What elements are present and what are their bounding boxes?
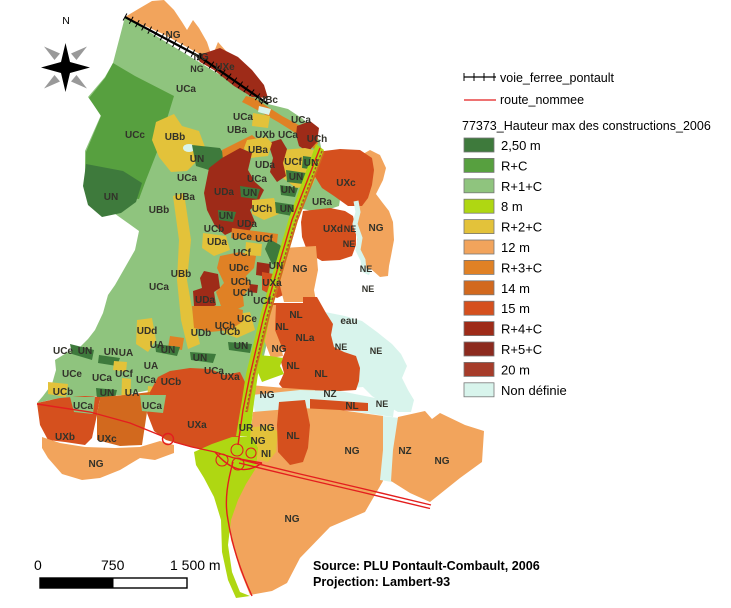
svg-text:12 m: 12 m bbox=[501, 240, 530, 255]
svg-text:UN: UN bbox=[161, 345, 175, 356]
svg-text:UN: UN bbox=[304, 158, 318, 169]
svg-text:UCa: UCa bbox=[291, 115, 311, 126]
svg-text:UXc: UXc bbox=[336, 178, 356, 189]
svg-text:UCe: UCe bbox=[62, 369, 82, 380]
svg-text:UN: UN bbox=[78, 346, 92, 357]
svg-text:UCb: UCb bbox=[220, 327, 241, 338]
svg-text:1 500 m: 1 500 m bbox=[170, 557, 221, 573]
svg-text:UN: UN bbox=[104, 192, 118, 203]
svg-text:UCa: UCa bbox=[278, 130, 298, 141]
svg-text:UDa: UDa bbox=[255, 160, 275, 171]
svg-text:UCb: UCb bbox=[204, 224, 225, 235]
svg-text:R+C: R+C bbox=[501, 158, 527, 173]
svg-text:UDa: UDa bbox=[237, 219, 257, 230]
svg-text:UN: UN bbox=[280, 204, 294, 215]
svg-text:NZ: NZ bbox=[398, 446, 411, 457]
svg-text:NG: NG bbox=[89, 459, 104, 470]
svg-text:NL: NL bbox=[314, 369, 327, 380]
svg-text:UCf: UCf bbox=[255, 234, 273, 245]
svg-text:NI: NI bbox=[261, 449, 271, 460]
svg-text:UCa: UCa bbox=[149, 282, 169, 293]
svg-text:UN: UN bbox=[100, 388, 114, 399]
svg-text:NG: NG bbox=[260, 423, 275, 434]
svg-text:UN: UN bbox=[289, 172, 303, 183]
svg-text:NL: NL bbox=[286, 361, 299, 372]
svg-text:route_nommee: route_nommee bbox=[500, 93, 584, 107]
svg-text:UDc: UDc bbox=[229, 263, 249, 274]
svg-text:UCa: UCa bbox=[142, 401, 162, 412]
svg-text:URa: URa bbox=[312, 197, 332, 208]
svg-text:UN: UN bbox=[269, 261, 283, 272]
svg-text:UN: UN bbox=[243, 188, 257, 199]
svg-text:8 m: 8 m bbox=[501, 199, 523, 214]
svg-text:UCf: UCf bbox=[253, 296, 271, 307]
svg-text:voie_ferree_pontault: voie_ferree_pontault bbox=[500, 71, 614, 85]
svg-text:UCb: UCb bbox=[161, 377, 182, 388]
svg-text:Projection: Lambert-93: Projection: Lambert-93 bbox=[313, 575, 450, 589]
svg-text:NE: NE bbox=[343, 239, 356, 249]
svg-text:UCh: UCh bbox=[231, 277, 252, 288]
svg-text:UBb: UBb bbox=[149, 205, 170, 216]
svg-text:NG: NG bbox=[251, 436, 266, 447]
svg-text:NE: NE bbox=[360, 264, 373, 274]
svg-text:UCa: UCa bbox=[73, 401, 93, 412]
svg-text:NG: NG bbox=[435, 456, 450, 467]
svg-text:UBa: UBa bbox=[248, 145, 268, 156]
svg-text:UCf: UCf bbox=[115, 369, 133, 380]
svg-text:R+4+C: R+4+C bbox=[501, 322, 542, 337]
svg-text:UCa: UCa bbox=[136, 375, 156, 386]
svg-text:R+3+C: R+3+C bbox=[501, 260, 542, 275]
svg-text:UXa: UXa bbox=[220, 372, 240, 383]
svg-text:UCa: UCa bbox=[176, 84, 196, 95]
svg-text:UDb: UDb bbox=[191, 328, 212, 339]
svg-text:UXc: UXc bbox=[97, 434, 117, 445]
svg-text:UCa: UCa bbox=[92, 373, 112, 384]
svg-text:NG: NG bbox=[293, 264, 308, 275]
svg-text:NE: NE bbox=[370, 346, 383, 356]
svg-text:eau: eau bbox=[340, 316, 357, 327]
svg-text:N: N bbox=[62, 15, 70, 27]
svg-text:UCa: UCa bbox=[233, 112, 253, 123]
svg-text:UCe: UCe bbox=[53, 346, 73, 357]
svg-text:UCc: UCc bbox=[125, 130, 145, 141]
svg-text:R+2+C: R+2+C bbox=[501, 220, 542, 235]
svg-text:750: 750 bbox=[101, 557, 125, 573]
svg-text:NG: NG bbox=[166, 30, 181, 41]
svg-text:UCa: UCa bbox=[247, 174, 267, 185]
svg-text:NL: NL bbox=[345, 401, 358, 412]
svg-text:77373_Hauteur max des construc: 77373_Hauteur max des constructions_2006 bbox=[462, 119, 711, 133]
svg-text:UCa: UCa bbox=[177, 173, 197, 184]
svg-text:UCh: UCh bbox=[252, 204, 273, 215]
svg-text:UN: UN bbox=[234, 341, 248, 352]
svg-text:NE: NE bbox=[362, 284, 375, 294]
svg-text:20 m: 20 m bbox=[501, 362, 530, 377]
svg-text:UA: UA bbox=[125, 388, 139, 399]
svg-text:NG: NG bbox=[369, 223, 384, 234]
svg-text:UA: UA bbox=[119, 348, 133, 359]
svg-text:UBb: UBb bbox=[165, 132, 186, 143]
svg-text:NL: NL bbox=[286, 431, 299, 442]
svg-text:UCf: UCf bbox=[284, 157, 302, 168]
svg-text:UR: UR bbox=[239, 423, 254, 434]
svg-text:UXd: UXd bbox=[323, 224, 343, 235]
svg-text:NL: NL bbox=[275, 322, 288, 333]
svg-text:Non définie: Non définie bbox=[501, 383, 567, 398]
svg-text:UXa: UXa bbox=[187, 420, 207, 431]
svg-text:UN: UN bbox=[104, 347, 118, 358]
svg-text:UCe: UCe bbox=[237, 314, 257, 325]
svg-text:UXb: UXb bbox=[255, 130, 275, 141]
svg-text:NE: NE bbox=[376, 399, 389, 409]
svg-text:NG: NG bbox=[345, 446, 360, 457]
svg-text:UXb: UXb bbox=[55, 432, 75, 443]
svg-text:UBc: UBc bbox=[258, 95, 278, 106]
svg-text:14 m: 14 m bbox=[501, 281, 530, 296]
svg-text:UN: UN bbox=[219, 211, 233, 222]
svg-text:UDd: UDd bbox=[137, 326, 158, 337]
svg-text:NL: NL bbox=[289, 310, 302, 321]
svg-text:UCf: UCf bbox=[233, 248, 251, 259]
svg-text:R+5+C: R+5+C bbox=[501, 342, 542, 357]
svg-text:NE: NE bbox=[335, 342, 348, 352]
svg-text:NG: NG bbox=[260, 390, 275, 401]
svg-text:UN: UN bbox=[193, 353, 207, 364]
svg-text:UBa: UBa bbox=[227, 125, 247, 136]
svg-text:UDa: UDa bbox=[195, 295, 215, 306]
svg-text:UDa: UDa bbox=[214, 187, 234, 198]
svg-text:UXe: UXe bbox=[215, 62, 235, 73]
svg-text:UCb: UCb bbox=[53, 387, 74, 398]
svg-text:Source: PLU Pontault-Combault,: Source: PLU Pontault-Combault, 2006 bbox=[313, 559, 540, 573]
svg-text:NG: NG bbox=[194, 52, 209, 63]
svg-text:UCh: UCh bbox=[233, 288, 254, 299]
svg-text:NG: NG bbox=[190, 64, 204, 74]
svg-text:R+1+C: R+1+C bbox=[501, 179, 542, 194]
svg-text:UXa: UXa bbox=[262, 278, 282, 289]
svg-text:UN: UN bbox=[190, 154, 204, 165]
svg-text:0: 0 bbox=[34, 557, 42, 573]
svg-text:UDa: UDa bbox=[207, 237, 227, 248]
svg-text:NG: NG bbox=[272, 344, 287, 355]
svg-text:UBa: UBa bbox=[175, 192, 195, 203]
svg-text:NE: NE bbox=[344, 224, 357, 234]
svg-text:UN: UN bbox=[281, 185, 295, 196]
svg-text:NLa: NLa bbox=[296, 333, 315, 344]
svg-text:UBb: UBb bbox=[171, 269, 192, 280]
svg-text:UA: UA bbox=[144, 361, 158, 372]
svg-text:15 m: 15 m bbox=[501, 301, 530, 316]
svg-text:UCh: UCh bbox=[307, 134, 328, 145]
svg-text:NZ: NZ bbox=[323, 389, 336, 400]
svg-text:2,50 m: 2,50 m bbox=[501, 138, 541, 153]
svg-text:UCe: UCe bbox=[232, 232, 252, 243]
svg-text:NG: NG bbox=[285, 514, 300, 525]
